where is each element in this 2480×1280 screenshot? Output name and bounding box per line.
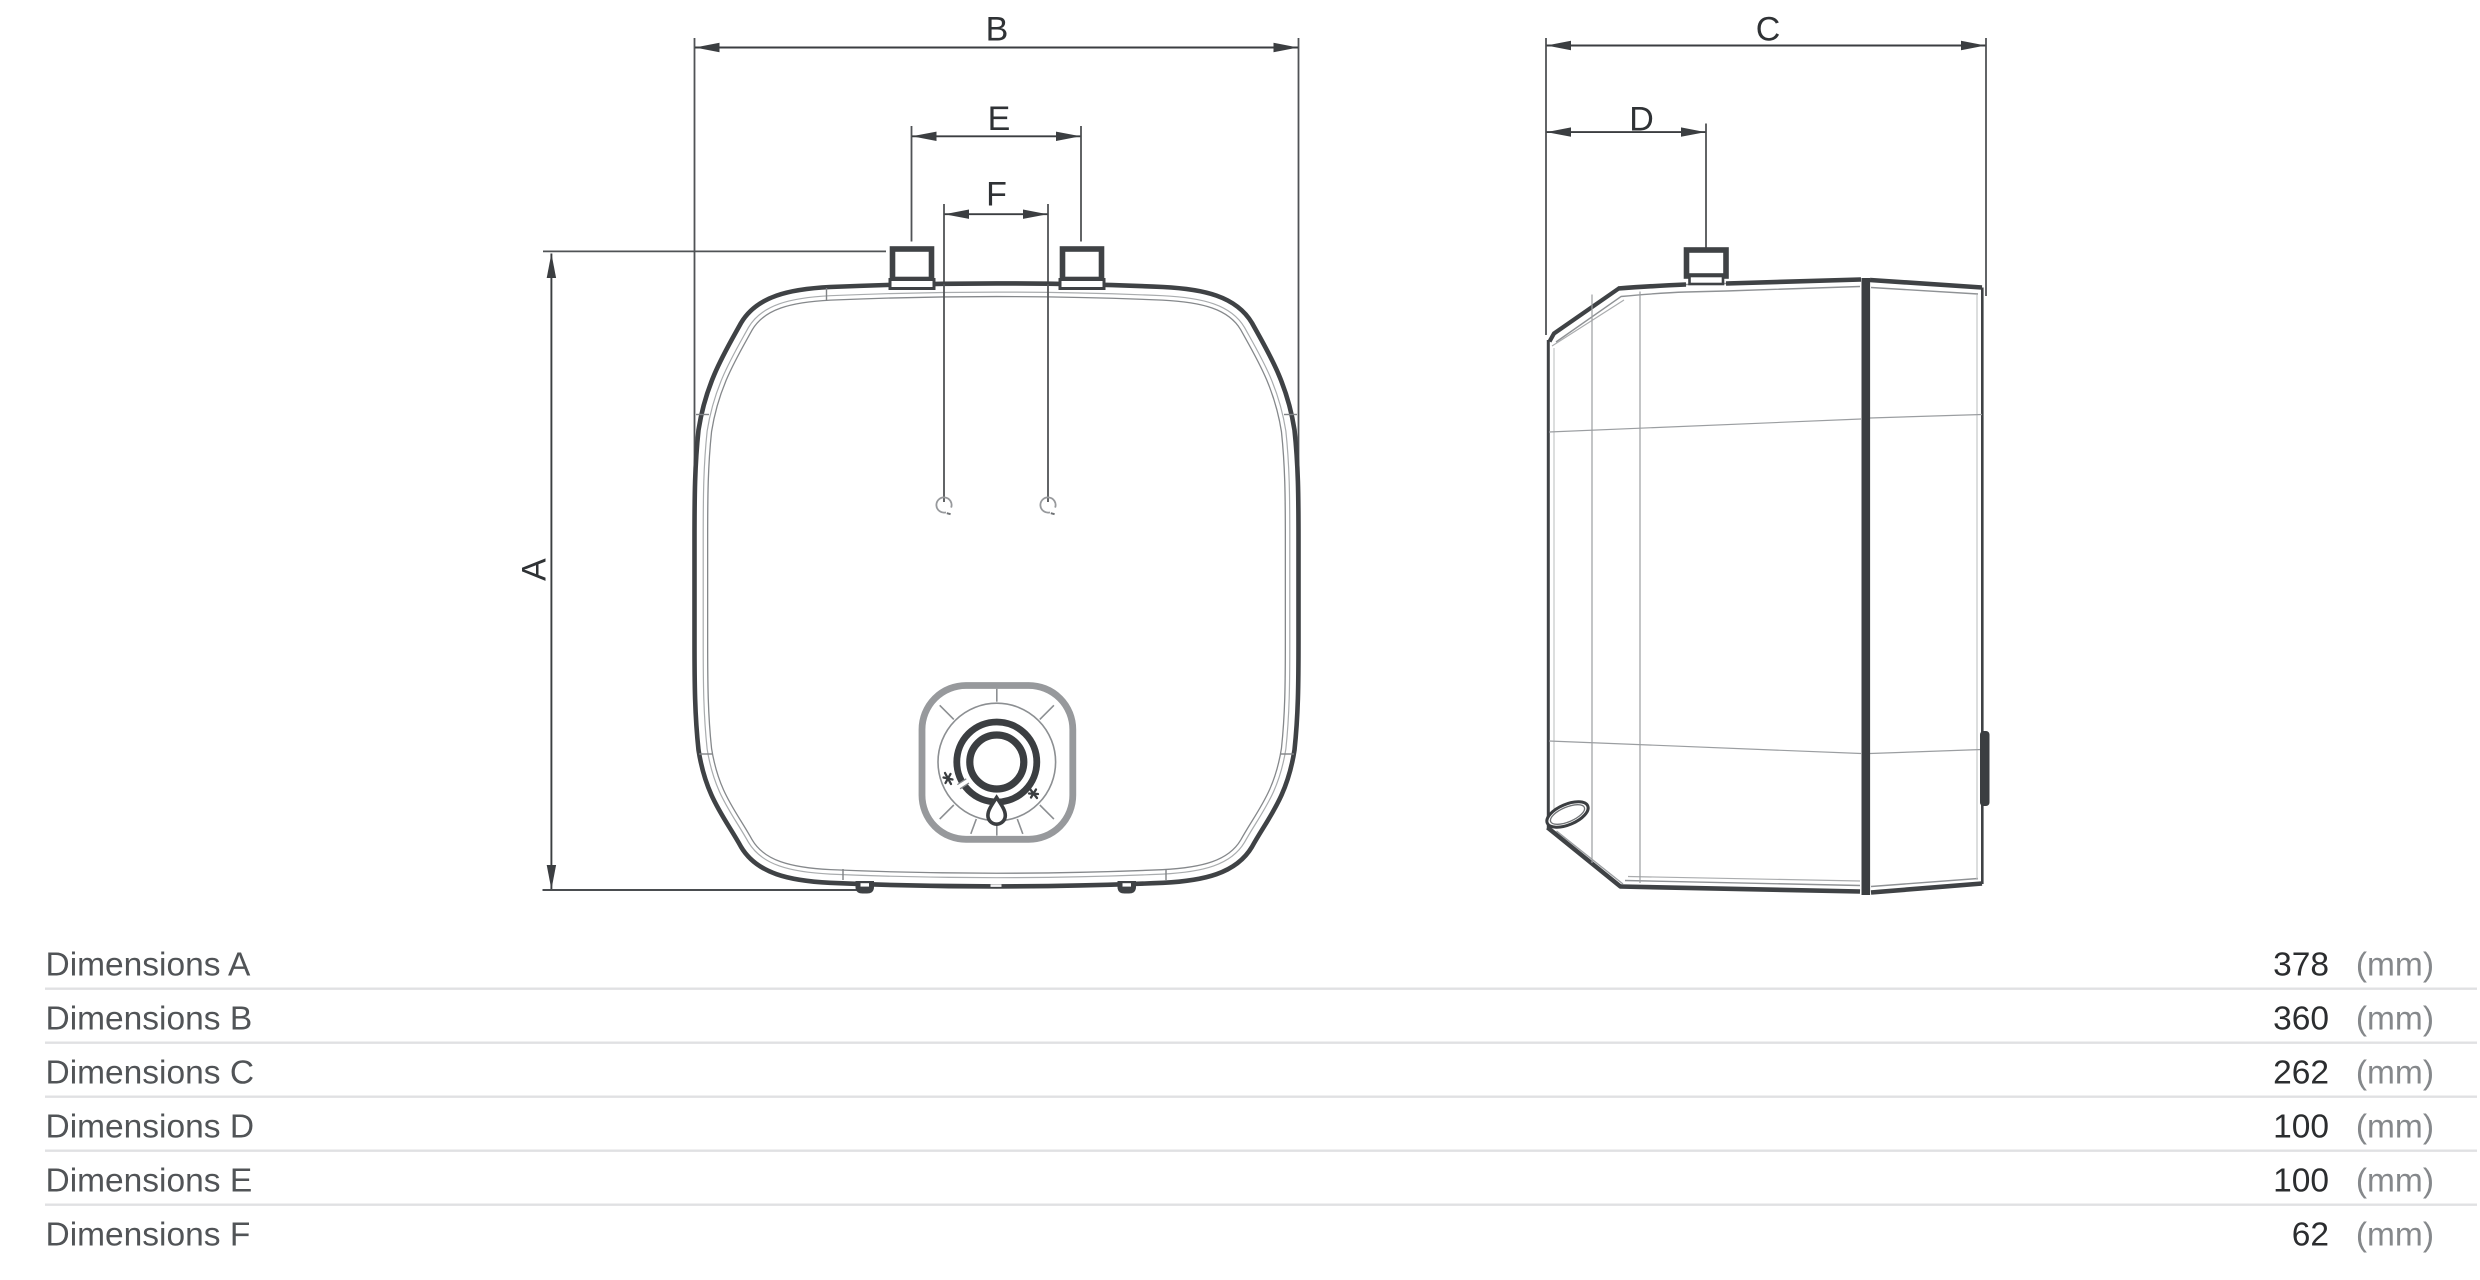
svg-text:360: 360 — [2273, 1001, 2329, 1038]
svg-text:B: B — [986, 11, 1009, 49]
svg-text:100: 100 — [2273, 1163, 2329, 1200]
svg-text:(mm): (mm) — [2356, 947, 2434, 984]
svg-text:262: 262 — [2273, 1055, 2329, 1092]
svg-text:100: 100 — [2273, 1109, 2329, 1146]
svg-text:C: C — [1756, 11, 1781, 49]
svg-text:378: 378 — [2273, 947, 2329, 984]
svg-text:Dimensions B: Dimensions B — [46, 1001, 253, 1038]
svg-text:Dimensions A: Dimensions A — [46, 947, 251, 984]
svg-text:D: D — [1629, 101, 1654, 139]
svg-text:E: E — [988, 100, 1011, 138]
svg-text:Dimensions C: Dimensions C — [46, 1055, 255, 1092]
svg-text:Dimensions D: Dimensions D — [46, 1109, 255, 1146]
svg-text:(mm): (mm) — [2356, 1001, 2434, 1038]
svg-text:F: F — [986, 176, 1007, 214]
svg-text:Dimensions F: Dimensions F — [46, 1217, 251, 1254]
svg-text:(mm): (mm) — [2356, 1109, 2434, 1146]
svg-text:(mm): (mm) — [2356, 1217, 2434, 1254]
svg-text:(mm): (mm) — [2356, 1163, 2434, 1200]
svg-text:A: A — [516, 558, 554, 581]
svg-text:Dimensions E: Dimensions E — [46, 1163, 253, 1200]
svg-text:(mm): (mm) — [2356, 1055, 2434, 1092]
svg-text:62: 62 — [2292, 1217, 2329, 1254]
